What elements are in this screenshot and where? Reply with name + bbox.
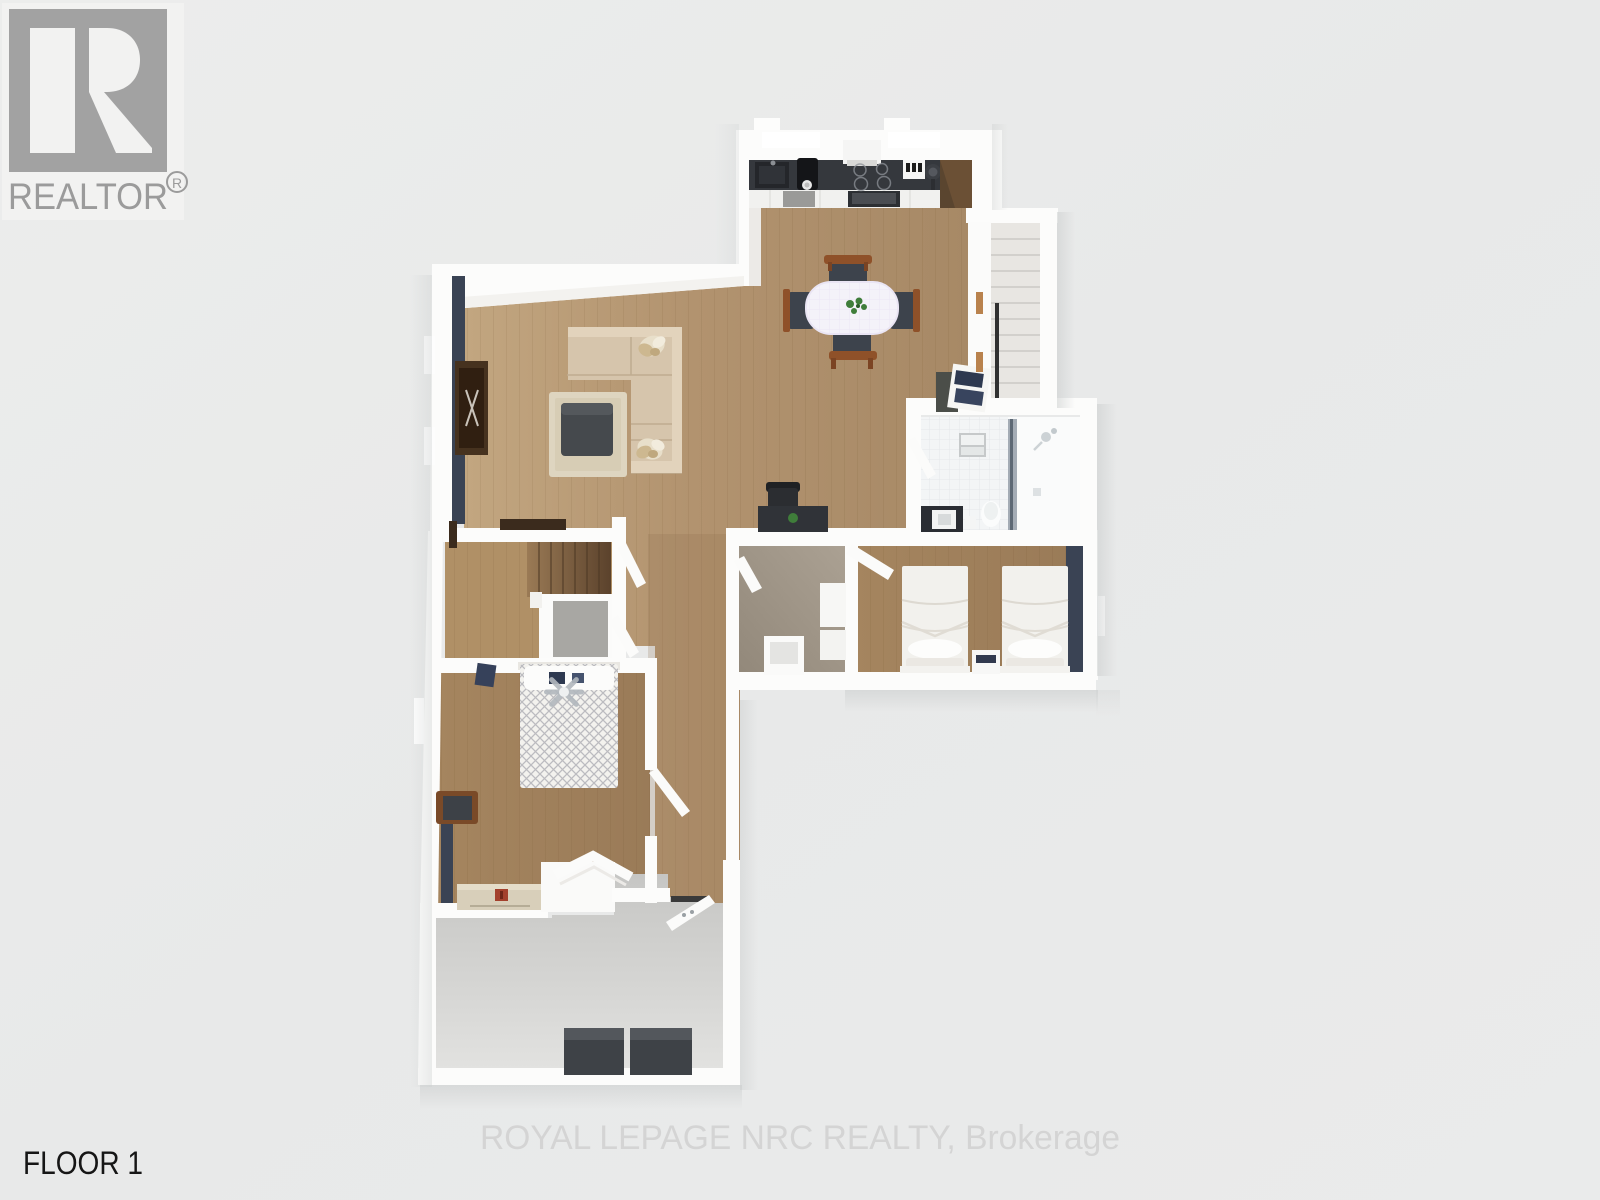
- svg-text:FLOOR 1: FLOOR 1: [23, 1145, 143, 1181]
- svg-text:R: R: [172, 175, 182, 191]
- svg-text:ROYAL LEPAGE NRC REALTY, Broke: ROYAL LEPAGE NRC REALTY, Brokerage: [480, 1119, 1120, 1157]
- svg-text:REALTOR: REALTOR: [8, 176, 168, 217]
